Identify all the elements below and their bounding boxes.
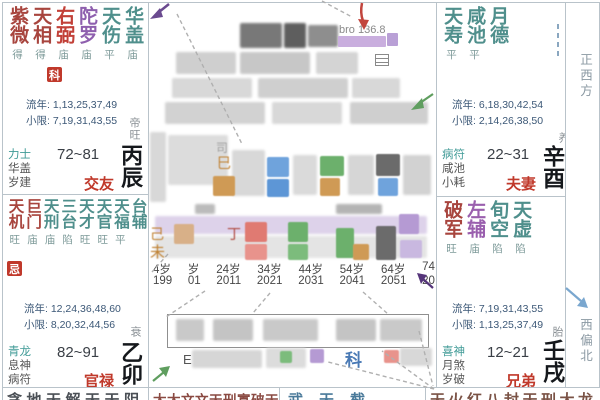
star-status: 庙: [127, 47, 138, 62]
redacted-block: [195, 204, 215, 214]
star-status: 陷: [62, 232, 73, 247]
color-block: [320, 156, 344, 176]
redacted-block: [232, 150, 265, 196]
ziwei-chart-screen: 紫微得 天相得 右弼庙 陀罗庙 天伤平 华盖庙 科 流年: 1,13,25,37…: [0, 0, 600, 400]
star-name: 华盖: [122, 6, 143, 44]
star-status: 旺: [10, 232, 21, 247]
star: 紫微得: [6, 6, 29, 62]
year-item: 20: [422, 275, 435, 287]
star-status: 庙: [469, 241, 480, 256]
year-item: 2021: [257, 275, 283, 287]
star: 左辅庙: [463, 200, 486, 256]
redacted-block: [150, 132, 166, 202]
xiaoxian-row: 小限: 7,19,31,43,55: [26, 114, 117, 130]
star-name: 天官: [94, 198, 111, 229]
redacted-info-box: [167, 314, 429, 348]
star: 咸池平: [463, 6, 486, 62]
year-item: 2051: [381, 275, 407, 287]
star-name: 破军: [441, 200, 462, 238]
god-item: 岁破: [442, 374, 465, 388]
star: 天寿平: [440, 6, 463, 62]
star-name: 天机: [6, 198, 23, 229]
star-row: 天机旺 巨门庙 天刑庙 三台陷 天才旺 天官旺 天福平 台辅: [6, 198, 147, 247]
star-name: 月德: [487, 6, 508, 44]
palace-mid-left[interactable]: 天机旺 巨门庙 天刑庙 三台陷 天才旺 天官旺 天福平 台辅 忌 流年: 12,…: [2, 194, 149, 389]
star-name: 陀罗: [76, 6, 97, 44]
redacted-block: [240, 52, 310, 74]
palace-mid-right[interactable]: 破军旺 左辅庙 旬空陷 天虚陷 流年: 7,19,31,43,55 小限: 1,…: [436, 196, 566, 389]
redacted-block: [308, 25, 338, 47]
palace-top-right[interactable]: 天寿平 咸池平 月德 流年: 6,18,30,42,54 小限: 2,14,26…: [436, 2, 566, 198]
color-block: [378, 178, 398, 196]
redacted-block: [380, 319, 422, 341]
star-name: 旬空: [487, 200, 508, 238]
gods-list: 力士 华盖 岁建: [8, 149, 31, 190]
year-item: 2031: [298, 275, 324, 287]
liunian-row: 流年: 6,18,30,42,54: [452, 98, 543, 114]
compass-label-west: 正西方: [576, 53, 595, 100]
bottom-palace-cell[interactable]: 武天截: [279, 387, 434, 400]
star-name: 右弼: [53, 6, 74, 44]
god-item: 病符: [8, 374, 31, 388]
star: 天才旺: [76, 198, 94, 247]
xiaoxian-row: 小限: 1,13,25,37,49: [452, 318, 543, 334]
star-name: 三台: [59, 198, 76, 229]
god-item: 岁建: [8, 177, 31, 191]
redacted-block: [352, 78, 400, 98]
annotation-text: bro 136.8: [339, 24, 385, 36]
redacted-block: [403, 155, 431, 195]
year-item: 01: [188, 275, 201, 287]
star-status: 庙: [81, 47, 92, 62]
star-status: 庙: [45, 232, 56, 247]
age-range: 72~81: [57, 146, 99, 163]
star: 破军旺: [440, 200, 463, 256]
redacted-block: [165, 102, 265, 124]
color-block: [310, 349, 324, 363]
bottom-palace-cell[interactable]: 天火红八封天刑大龙: [425, 387, 600, 400]
redacted-block: [336, 204, 382, 214]
god-item: 月煞: [442, 360, 465, 374]
star: 巨门庙: [24, 198, 42, 247]
bottom-palace-cell[interactable]: 贪地天解天天阴: [2, 387, 153, 400]
color-block: [213, 176, 235, 196]
star: 天福平: [112, 198, 130, 247]
star-name: 巨门: [24, 198, 41, 229]
changsheng-label: 衰: [127, 326, 143, 338]
star: 天官旺: [94, 198, 112, 247]
star: 旬空陷: [486, 200, 509, 256]
star-name: 咸池: [464, 6, 485, 44]
faint-char-ding: 丁: [227, 224, 241, 244]
color-block: [376, 154, 400, 176]
palace-name: 交友: [84, 173, 114, 194]
color-block: [399, 214, 419, 234]
color-block: [376, 226, 396, 260]
sihua-badge-ji: 忌: [7, 261, 22, 276]
gods-list: 青龙 息神 病符: [8, 346, 31, 387]
decade-years-row: 199012011202120312041205120: [153, 275, 435, 287]
star-status: 平: [104, 47, 115, 62]
redacted-block: [284, 23, 306, 48]
redacted-block: [348, 155, 374, 195]
liunian-row: 流年: 12,24,36,48,60: [24, 302, 121, 318]
star-status: 得: [35, 47, 46, 62]
color-block: [267, 179, 289, 197]
changsheng-label: 胎: [549, 326, 565, 338]
bottom-palace-cell[interactable]: 太太文文天刑寡破天: [148, 387, 284, 400]
limits-block: 流年: 1,13,25,37,49 小限: 7,19,31,43,55: [26, 98, 117, 130]
star: 天相得: [29, 6, 52, 62]
star-row: 紫微得 天相得 右弼庙 陀罗庙 天伤平 华盖庙: [6, 6, 144, 62]
star: 三台陷: [59, 198, 77, 247]
stem-branch: 壬戌: [541, 339, 564, 383]
star-name: 天虚: [510, 200, 531, 238]
god-item: 力士: [8, 149, 31, 163]
redacted-block: [336, 319, 376, 341]
god-item: 咸池: [442, 163, 465, 177]
color-block: [267, 157, 289, 177]
faint-char-wei: 未: [150, 241, 165, 262]
star-name: 天相: [30, 6, 51, 44]
star-name: 天才: [76, 198, 93, 229]
star: 台辅: [129, 198, 147, 247]
god-item: 喜神: [442, 346, 465, 360]
color-block: [353, 244, 369, 260]
star-status: 庙: [58, 47, 69, 62]
gods-list: 病符 咸池 小耗: [442, 149, 465, 190]
stem-branch: 乙卯: [119, 341, 142, 385]
liunian-row: 流年: 7,19,31,43,55: [452, 302, 543, 318]
star-status: 陷: [492, 241, 503, 256]
year-item: 2011: [216, 275, 241, 287]
palace-top-left[interactable]: 紫微得 天相得 右弼庙 陀罗庙 天伤平 华盖庙 科 流年: 1,13,25,37…: [2, 2, 149, 196]
liunian-row: 流年: 1,13,25,37,49: [26, 98, 117, 114]
star-status: 平: [446, 47, 457, 62]
god-item: 青龙: [8, 346, 31, 360]
color-block: [288, 244, 308, 260]
stem-branch: 丙辰: [119, 144, 142, 188]
god-item: 病符: [442, 149, 465, 163]
redacted-block: [350, 102, 428, 124]
star: 天刑庙: [41, 198, 59, 247]
color-block: [288, 222, 308, 242]
gods-list: 喜神 月煞 岁破: [442, 346, 465, 387]
stem-branch: 辛酉: [541, 145, 564, 189]
star: 右弼庙: [52, 6, 75, 62]
xiaoxian-row: 小限: 8,20,32,44,56: [24, 318, 121, 334]
color-block: [400, 240, 422, 258]
star-name: 天寿: [441, 6, 462, 44]
table-icon[interactable]: [375, 54, 389, 66]
star: 华盖庙: [121, 6, 144, 62]
star: 陀罗庙: [75, 6, 98, 62]
ke-mark: 科: [345, 346, 362, 371]
age-range: 22~31: [487, 146, 529, 163]
color-block: [174, 224, 194, 244]
star-name: 天伤: [99, 6, 120, 44]
star: 天虚陷: [509, 200, 532, 256]
faint-char-snake: 巳: [217, 153, 231, 173]
god-item: 小耗: [442, 177, 465, 191]
e-fragment: E: [183, 352, 192, 367]
star-row: 破军旺 左辅庙 旬空陷 天虚陷: [440, 200, 532, 256]
god-item: 息神: [8, 360, 31, 374]
star-name: 左辅: [464, 200, 485, 238]
redacted-block: [240, 23, 282, 48]
star-status: 得: [12, 47, 23, 62]
color-block: [280, 351, 292, 363]
redacted-block: [272, 102, 342, 124]
star: 天机旺: [6, 198, 24, 247]
redacted-block: [263, 319, 318, 341]
redacted-block: [176, 319, 204, 341]
star-status: 旺: [446, 241, 457, 256]
age-range: 12~21: [487, 344, 529, 361]
year-item: 199: [153, 275, 172, 287]
redacted-block: [192, 350, 262, 368]
god-item: 华盖: [8, 163, 31, 177]
star: 天伤平: [98, 6, 121, 62]
limits-block: 流年: 6,18,30,42,54 小限: 2,14,26,38,50: [452, 98, 543, 130]
star-name: 紫微: [7, 6, 28, 44]
compass-gutter: 正西方 西偏北: [565, 2, 600, 400]
changsheng-label: 帝旺: [126, 117, 142, 141]
star-name: 天刑: [41, 198, 58, 229]
redacted-block: [293, 155, 317, 195]
star-status: 陷: [515, 241, 526, 256]
color-block: [320, 178, 340, 196]
redacted-block: [316, 52, 358, 74]
star-name: 天福: [112, 198, 129, 229]
redacted-block: [258, 78, 348, 98]
redacted-block: [172, 78, 252, 98]
color-block: [336, 228, 354, 258]
year-item: 2041: [340, 275, 366, 287]
redacted-block: [213, 319, 253, 341]
sihua-badge-ke: 科: [47, 67, 62, 82]
redacted-block: [400, 348, 432, 366]
star-row: 天寿平 咸池平 月德: [440, 6, 509, 62]
purple-highlight: [387, 33, 398, 46]
limits-block: 流年: 7,19,31,43,55 小限: 1,13,25,37,49: [452, 302, 543, 334]
star-status: 庙: [27, 232, 38, 247]
purple-highlight: [338, 36, 386, 47]
star-name: 台辅: [129, 198, 146, 229]
compass-label-west-by-north: 西偏北: [576, 318, 595, 365]
limits-block: 流年: 12,24,36,48,60 小限: 8,20,32,44,56: [24, 302, 121, 334]
age-range: 82~91: [57, 344, 99, 361]
palace-name: 夫妻: [506, 173, 536, 194]
star-status: 平: [469, 47, 480, 62]
star-status: 旺: [98, 232, 109, 247]
star-status: 平: [115, 232, 126, 247]
color-block: [384, 350, 399, 363]
xiaoxian-row: 小限: 2,14,26,38,50: [452, 114, 543, 130]
color-block: [245, 222, 267, 242]
color-block: [245, 244, 267, 260]
redacted-block: [176, 52, 236, 74]
star-status: 旺: [80, 232, 91, 247]
star: 月德: [486, 6, 509, 62]
